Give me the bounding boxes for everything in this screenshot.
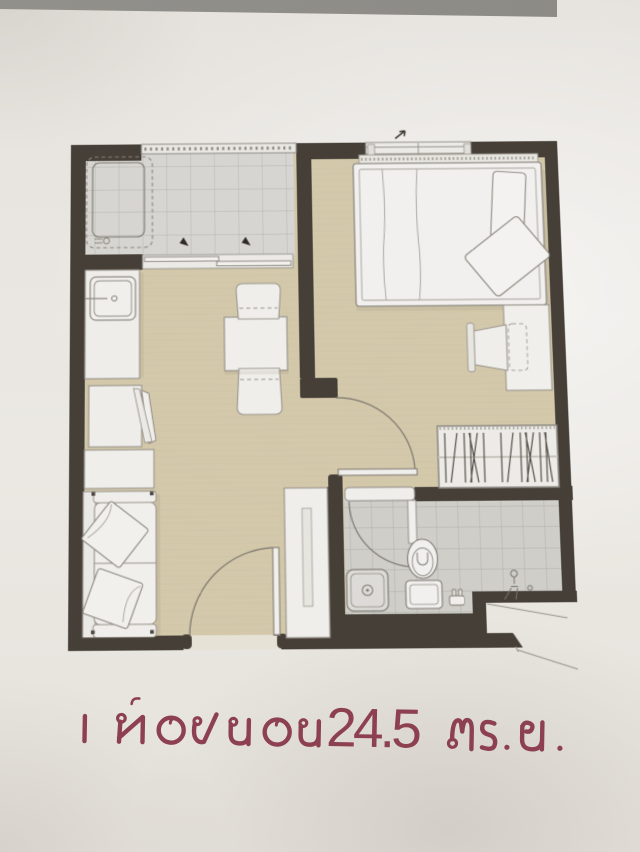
svg-text:24.5: 24.5 bbox=[326, 696, 421, 760]
